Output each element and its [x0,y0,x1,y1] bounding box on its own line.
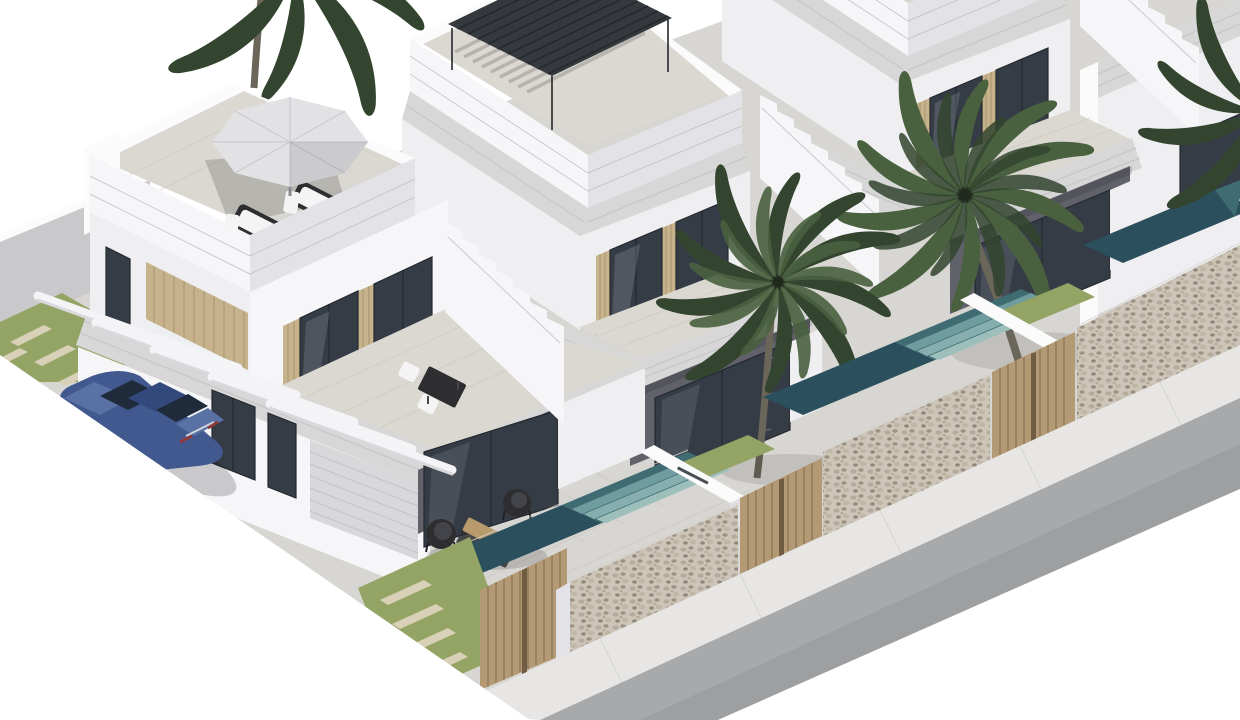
entrance-door [268,413,296,498]
architectural-render: Architectural 3D rendering: row of moder… [0,0,1240,720]
side-window [106,247,130,329]
render-canvas: Architectural 3D rendering: row of moder… [0,0,1240,720]
